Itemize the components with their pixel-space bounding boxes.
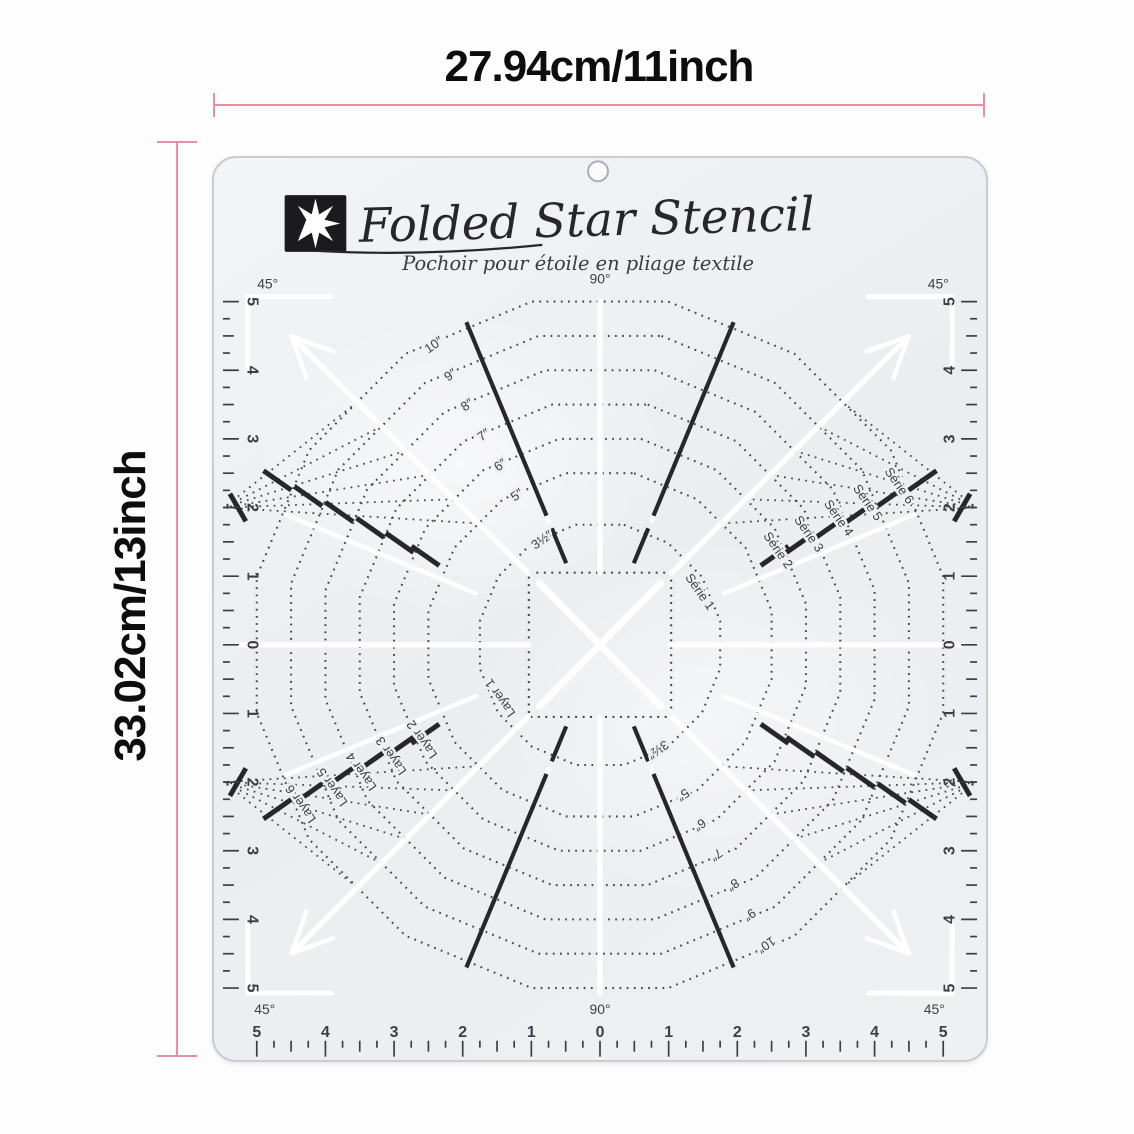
stencil-artwork: Folded Star Stencil Pochoir pour étoile … xyxy=(214,158,986,1060)
angle-label-bottom-center: 90° xyxy=(589,1001,610,1017)
ruler-number-bottom: 3 xyxy=(390,1024,399,1041)
width-dimension-label: 27.94cm/11inch xyxy=(213,42,985,92)
ring-tick xyxy=(693,386,707,421)
diagonal-arrow-line xyxy=(672,336,909,573)
ring-tick xyxy=(506,837,520,872)
ruler-number-right: 0 xyxy=(942,640,959,649)
ring-tick xyxy=(506,417,520,452)
corner-bracket xyxy=(869,297,953,367)
angle-label-top-right: 45° xyxy=(928,276,949,292)
ring-tick xyxy=(480,354,494,389)
ruler-number-left: 4 xyxy=(243,366,260,375)
ruler-number-bottom: 2 xyxy=(733,1024,742,1041)
ring-tick xyxy=(532,481,546,516)
angle-label-bottom-left: 45° xyxy=(254,1001,275,1017)
fan-tick xyxy=(412,546,440,565)
ruler-number-bottom: 4 xyxy=(321,1024,330,1041)
ring-tick xyxy=(493,869,507,904)
ring-tick xyxy=(532,774,546,809)
fan-line-nw xyxy=(224,402,357,507)
ring-tick xyxy=(706,354,720,389)
ring-tick xyxy=(519,806,533,841)
ruler-number-right: 4 xyxy=(942,366,959,375)
ring-tick xyxy=(634,528,648,563)
ring-tick xyxy=(693,869,707,904)
fan-tick xyxy=(816,752,844,771)
ruler-number-right: 2 xyxy=(942,778,959,787)
hanging-hole xyxy=(588,161,608,181)
ring-size-label-top: 10″ xyxy=(422,333,446,356)
ruler-number-left: 1 xyxy=(243,572,260,581)
diagonal-arrow-line xyxy=(292,716,529,953)
ruler-number-right: 4 xyxy=(942,915,959,924)
ruler-number-right: 5 xyxy=(942,297,959,306)
width-dimension-line xyxy=(213,104,985,106)
ruler-number-bottom: 4 xyxy=(870,1024,879,1041)
angle-label-top-center: 90° xyxy=(589,271,610,287)
corner-bracket xyxy=(869,923,953,993)
ruler-number-left: 0 xyxy=(243,640,260,649)
dimension-cap xyxy=(983,93,985,117)
stencil-title: Folded Star Stencil xyxy=(357,188,815,254)
dimension-cap xyxy=(157,1055,197,1057)
ring-size-label-bottom: 9″ xyxy=(740,905,759,924)
ruler-number-bottom: 3 xyxy=(802,1024,811,1041)
corner-bracket xyxy=(248,297,332,367)
ruler-number-bottom: 1 xyxy=(664,1024,673,1041)
fan-tick xyxy=(357,518,385,537)
ruler-number-right: 1 xyxy=(942,572,959,581)
ring-tick xyxy=(519,449,533,484)
ring-size-label-top: 6″ xyxy=(491,455,510,474)
ruler-number-left: 5 xyxy=(243,984,260,993)
ruler-number-bottom: 0 xyxy=(596,1024,605,1041)
fold-ray xyxy=(724,696,914,775)
fan-tick xyxy=(386,533,414,552)
dimension-cap xyxy=(213,93,215,117)
fan-tick xyxy=(847,768,875,787)
ring-size-label-bottom: 6″ xyxy=(690,815,709,834)
product-image: 27.94cm/11inch 33.02cm/13inch Folded Sta… xyxy=(0,0,1134,1134)
ring-size-label-bottom: 5″ xyxy=(674,785,693,804)
ruler-number-left: 5 xyxy=(243,297,260,306)
ring-tick xyxy=(653,774,667,809)
ruler-number-bottom: 5 xyxy=(939,1024,948,1041)
ring-tick xyxy=(480,901,494,936)
ring-size-label-bottom: 10″ xyxy=(754,933,778,956)
ring-tick xyxy=(719,322,733,357)
ring-size-label-top: 9″ xyxy=(441,365,460,384)
ring-tick xyxy=(466,932,480,967)
ring-tick xyxy=(653,481,667,516)
ring-tick xyxy=(680,417,694,452)
fan-tick xyxy=(909,471,937,490)
ruler-number-left: 2 xyxy=(243,503,260,512)
ruler-number-bottom: 5 xyxy=(252,1024,261,1041)
ring-size-label-top: 8″ xyxy=(458,395,477,414)
ruler-number-right: 1 xyxy=(942,709,959,718)
serie-labels: Série 1Série 2Série 3Série 4Série 5Série… xyxy=(682,464,917,612)
ruler-number-right: 2 xyxy=(942,503,959,512)
ring-tick xyxy=(493,386,507,421)
angle-label-bottom-right: 45° xyxy=(924,1001,945,1017)
ring-size-label-top: 7″ xyxy=(474,425,493,444)
corner-bracket xyxy=(248,923,332,993)
ruler-number-bottom: 1 xyxy=(527,1024,536,1041)
white-fold-lines-layer xyxy=(240,297,960,993)
diagonal-arrow-line xyxy=(672,716,909,953)
ring-tick xyxy=(466,322,480,357)
height-dimension-line xyxy=(176,141,178,1057)
brand-logo xyxy=(285,195,347,252)
fold-ray xyxy=(724,515,914,594)
layer-labels: Layer 1Layer 2Layer 3Layer 4Layer 5Layer… xyxy=(282,676,518,826)
layer-label: Layer 1 xyxy=(481,676,518,720)
ring-tick xyxy=(634,726,648,761)
fan-tick xyxy=(909,800,937,819)
ring-size-label-top: 5″ xyxy=(508,485,527,504)
stencil-subtitle: Pochoir pour étoile en pliage textile xyxy=(401,252,754,275)
fan-tick xyxy=(761,724,789,743)
ring-size-label-bottom: 7″ xyxy=(707,845,726,864)
ring-size-label-bottom: 8″ xyxy=(724,875,743,894)
fold-ray xyxy=(286,696,476,775)
height-dimension-label: 33.02cm/13inch xyxy=(106,450,156,761)
ruler-number-bottom: 2 xyxy=(458,1024,467,1041)
ruler-number-left: 2 xyxy=(243,778,260,787)
ruler-number-right: 3 xyxy=(942,846,959,855)
ruler-number-left: 3 xyxy=(243,434,260,443)
ring-tick xyxy=(719,932,733,967)
ring-tick xyxy=(706,901,720,936)
serie-label: Série 1 xyxy=(682,570,718,612)
ring-tick xyxy=(552,528,566,563)
ring-tick xyxy=(552,726,566,761)
fan-tick xyxy=(786,737,814,756)
angle-label-top-left: 45° xyxy=(257,276,278,292)
fan-tick xyxy=(878,784,906,803)
fold-ray xyxy=(286,515,476,594)
fan-tick xyxy=(295,487,323,506)
ruler-number-left: 1 xyxy=(243,709,260,718)
ruler-number-left: 4 xyxy=(243,915,260,924)
fan-line-se xyxy=(843,782,976,887)
diagonal-arrow-line xyxy=(292,336,529,573)
ring-tick xyxy=(667,806,681,841)
stencil-plate: Folded Star Stencil Pochoir pour étoile … xyxy=(212,156,988,1062)
ruler-number-right: 5 xyxy=(942,983,959,992)
ring-tick xyxy=(680,837,694,872)
fan-tick xyxy=(326,502,354,521)
ruler-number-left: 3 xyxy=(243,846,260,855)
fan-tick xyxy=(263,800,291,819)
ruler-number-right: 3 xyxy=(942,434,959,443)
ring-tick xyxy=(667,449,681,484)
dimension-cap xyxy=(157,141,197,143)
fan-tick xyxy=(263,471,291,490)
